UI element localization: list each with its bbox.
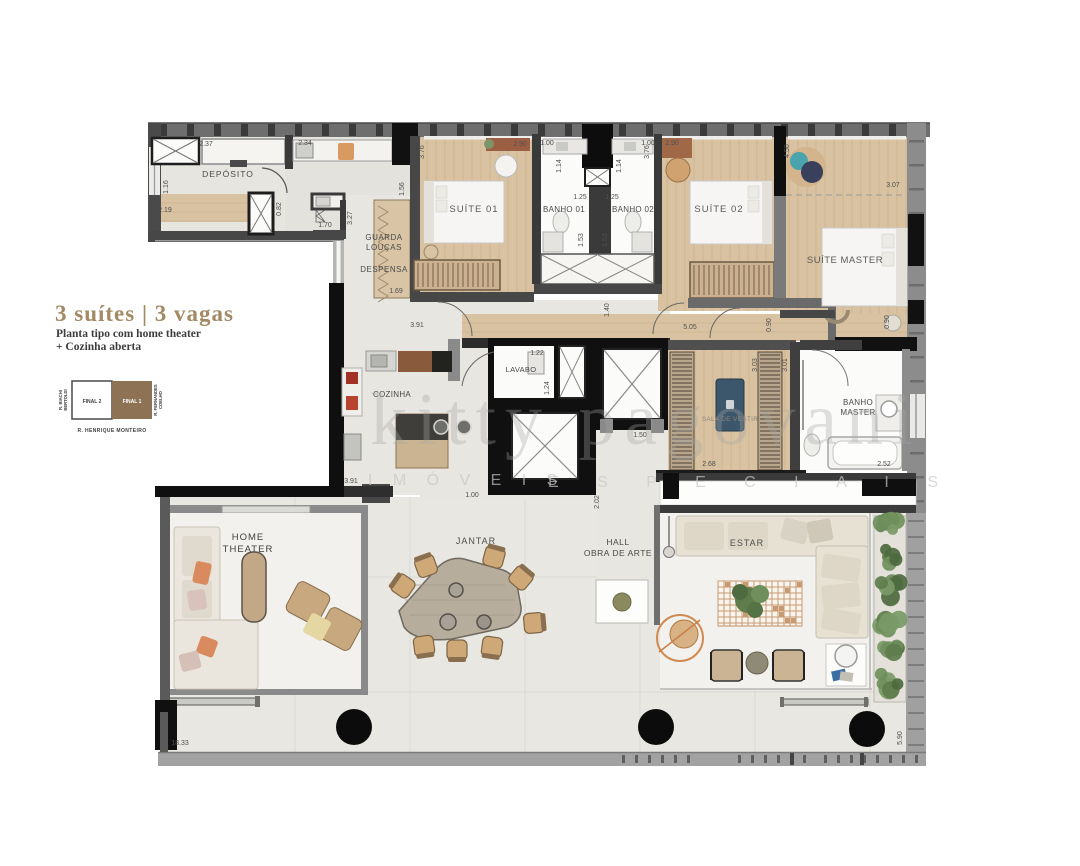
svg-text:2.34: 2.34 [298, 140, 312, 147]
svg-text:BERTOLDI: BERTOLDI [63, 389, 68, 410]
svg-text:SUÍTE 01: SUÍTE 01 [449, 204, 498, 215]
svg-text:Planta tipo com home theater: Planta tipo com home theater [56, 328, 201, 340]
svg-text:5.90: 5.90 [897, 731, 904, 745]
svg-text:OBRA DE ARTE: OBRA DE ARTE [584, 548, 652, 558]
svg-text:3.03: 3.03 [752, 358, 759, 372]
svg-text:1.22: 1.22 [530, 350, 544, 357]
svg-text:1.14: 1.14 [616, 159, 623, 173]
svg-text:3.01: 3.01 [782, 358, 789, 372]
svg-text:BANHO 01: BANHO 01 [543, 205, 585, 214]
svg-text:FINAL 1: FINAL 1 [123, 399, 142, 405]
svg-text:LAVABO: LAVABO [506, 365, 537, 374]
svg-text:SUÍTE MASTER: SUÍTE MASTER [807, 255, 883, 266]
svg-text:DEPÓSITO: DEPÓSITO [202, 169, 254, 179]
svg-text:3.76: 3.76 [644, 145, 651, 159]
svg-text:LOUÇAS: LOUÇAS [366, 243, 402, 252]
svg-text:GUARDA: GUARDA [365, 233, 402, 242]
svg-text:1.53: 1.53 [602, 233, 609, 247]
svg-text:R. HENRIQUE MONTEIRO: R. HENRIQUE MONTEIRO [77, 428, 146, 434]
svg-text:1.25: 1.25 [573, 194, 587, 201]
svg-text:4.50: 4.50 [784, 144, 791, 158]
svg-text:0.90: 0.90 [884, 315, 891, 329]
svg-text:JANTAR: JANTAR [456, 536, 496, 546]
svg-text:2.90: 2.90 [513, 141, 527, 148]
svg-text:BANHO 02: BANHO 02 [612, 205, 654, 214]
svg-text:2.68: 2.68 [702, 461, 716, 468]
svg-text:kitty pagovani: kitty pagovani [370, 379, 921, 461]
svg-text:HOME: HOME [232, 532, 265, 543]
svg-text:FINAL 2: FINAL 2 [83, 399, 102, 405]
svg-text:COELHO: COELHO [158, 390, 163, 409]
svg-text:3.91: 3.91 [344, 478, 358, 485]
svg-text:5.05: 5.05 [683, 324, 697, 331]
svg-text:1.25: 1.25 [605, 194, 619, 201]
svg-text:1.00: 1.00 [540, 140, 554, 147]
svg-text:3.91: 3.91 [410, 322, 424, 329]
svg-text:1.53: 1.53 [578, 233, 585, 247]
svg-text:1.70: 1.70 [318, 222, 332, 229]
svg-text:1.14: 1.14 [556, 159, 563, 173]
svg-text:2.52: 2.52 [877, 461, 891, 468]
svg-text:1.16: 1.16 [163, 180, 170, 194]
svg-text:THEATER: THEATER [223, 544, 274, 555]
svg-text:3.27: 3.27 [347, 211, 354, 225]
svg-text:DESPENSA: DESPENSA [360, 265, 408, 274]
svg-text:HALL: HALL [606, 537, 629, 547]
svg-text:3.07: 3.07 [886, 182, 900, 189]
svg-text:1.56: 1.56 [399, 182, 406, 196]
svg-text:1.69: 1.69 [389, 288, 403, 295]
svg-text:2.90: 2.90 [665, 140, 679, 147]
svg-text:3 suítes | 3 vagas: 3 suítes | 3 vagas [55, 301, 234, 326]
svg-text:SUÍTE 02: SUÍTE 02 [694, 204, 743, 215]
svg-text:I M Ó V E I S: I M Ó V E I S [368, 470, 565, 489]
svg-text:+ Cozinha aberta: + Cozinha aberta [56, 341, 141, 353]
svg-text:0.90: 0.90 [766, 318, 773, 332]
svg-text:18.33: 18.33 [171, 740, 189, 747]
svg-text:3.76: 3.76 [419, 145, 426, 159]
svg-text:E S P E C I A I S: E S P E C I A I S [548, 474, 955, 491]
svg-text:1.00: 1.00 [465, 492, 479, 499]
svg-text:2.37: 2.37 [199, 141, 213, 148]
svg-text:0.82: 0.82 [276, 202, 283, 216]
svg-text:2.19: 2.19 [158, 207, 172, 214]
svg-text:ESTAR: ESTAR [730, 538, 764, 548]
svg-text:1.40: 1.40 [604, 303, 611, 317]
svg-text:2.02: 2.02 [594, 495, 601, 509]
